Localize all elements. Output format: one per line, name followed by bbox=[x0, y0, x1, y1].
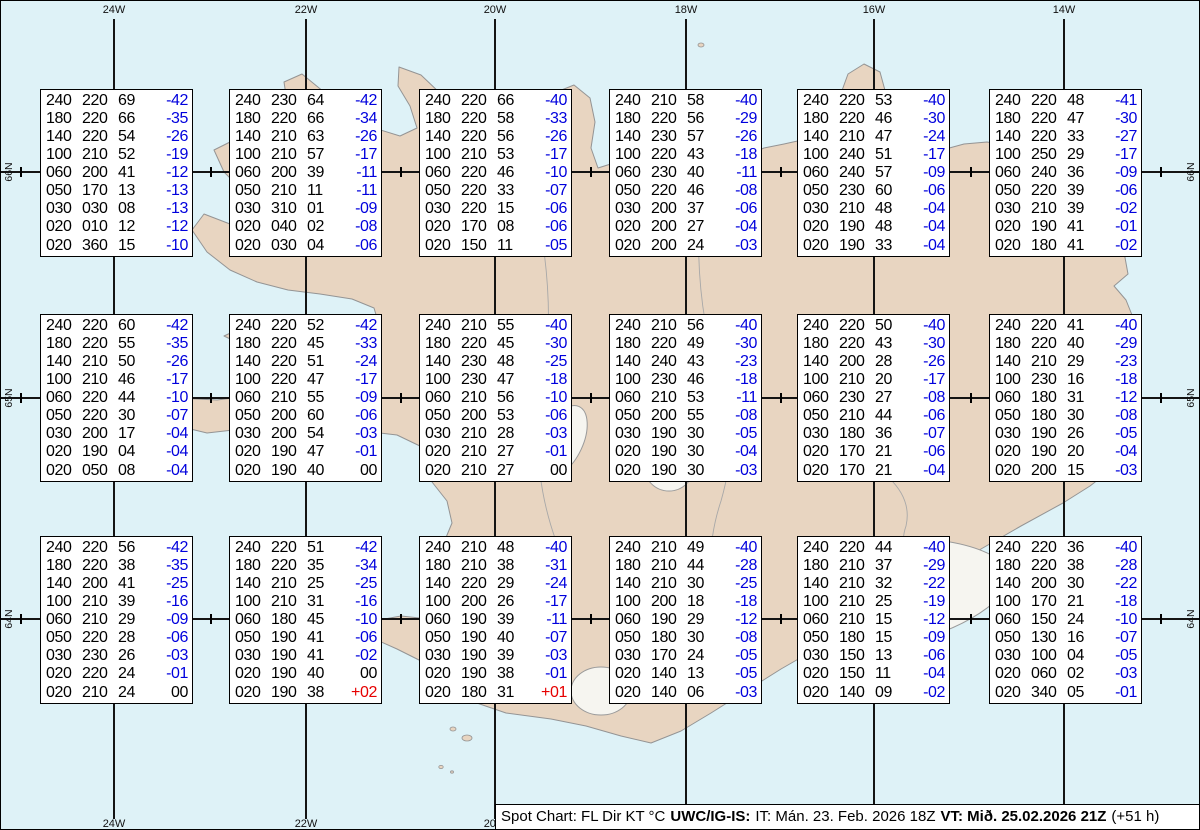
temperature-c: -11 bbox=[356, 164, 377, 181]
spot-row: 06020039-11 bbox=[235, 164, 377, 181]
temperature-c: -04 bbox=[166, 443, 188, 460]
temperature-c: -30 bbox=[923, 110, 945, 127]
temperature-c: -40 bbox=[923, 539, 945, 556]
flight-level: 060 bbox=[425, 611, 461, 628]
wind-speed-kt: 56 bbox=[687, 317, 715, 334]
spot-row: 18022045-33 bbox=[235, 335, 377, 352]
spot-row: 10025029-17 bbox=[995, 146, 1137, 163]
flight-level: 240 bbox=[615, 92, 651, 109]
wind-speed-kt: 37 bbox=[687, 200, 715, 217]
flight-level: 060 bbox=[803, 164, 839, 181]
wind-direction: 210 bbox=[1031, 353, 1067, 370]
wind-speed-kt: 44 bbox=[687, 557, 715, 574]
wind-speed-kt: 48 bbox=[1067, 92, 1095, 109]
flight-level: 100 bbox=[235, 371, 271, 388]
temperature-c: -06 bbox=[923, 443, 945, 460]
spot-row: 14020028-26 bbox=[803, 353, 945, 370]
spot-row: 06024036-09 bbox=[995, 164, 1137, 181]
spot-row: 14023057-26 bbox=[615, 128, 757, 145]
temperature-c: -02 bbox=[923, 684, 945, 701]
wind-speed-kt: 63 bbox=[307, 128, 335, 145]
spot-row: 10023016-18 bbox=[995, 371, 1137, 388]
wind-direction: 220 bbox=[82, 629, 118, 646]
temperature-c: -11 bbox=[736, 389, 757, 406]
temperature-c: -10 bbox=[1115, 611, 1137, 628]
wind-direction: 230 bbox=[271, 92, 307, 109]
wind-speed-kt: 43 bbox=[687, 353, 715, 370]
flight-level: 100 bbox=[615, 371, 651, 388]
wind-direction: 010 bbox=[82, 218, 118, 235]
flight-level: 100 bbox=[615, 593, 651, 610]
flight-level: 240 bbox=[235, 92, 271, 109]
spot-row: 10021039-16 bbox=[46, 593, 188, 610]
wind-direction: 190 bbox=[271, 443, 307, 460]
spot-row: 03010004-05 bbox=[995, 647, 1137, 664]
graticule-tick bbox=[590, 614, 592, 624]
flight-level: 060 bbox=[235, 611, 271, 628]
spot-row: 14021050-26 bbox=[46, 353, 188, 370]
wind-direction: 200 bbox=[651, 200, 687, 217]
spot-row: 0201904000 bbox=[235, 462, 377, 479]
temperature-c: -03 bbox=[545, 425, 567, 442]
graticule-tick bbox=[20, 614, 22, 624]
wind-speed-kt: 01 bbox=[307, 200, 335, 217]
temperature-c: -12 bbox=[166, 218, 188, 235]
spot-row: 02019033-04 bbox=[803, 237, 945, 254]
temperature-c: -08 bbox=[735, 182, 757, 199]
flight-level: 020 bbox=[46, 684, 82, 701]
wind-direction: 340 bbox=[1031, 684, 1067, 701]
flight-level: 050 bbox=[235, 407, 271, 424]
temperature-c: -06 bbox=[545, 407, 567, 424]
wind-speed-kt: 02 bbox=[307, 218, 335, 235]
flight-level: 180 bbox=[425, 557, 461, 574]
graticule-tick bbox=[400, 393, 402, 403]
longitude-label: 14W bbox=[1047, 4, 1081, 16]
temperature-c: -04 bbox=[923, 200, 945, 217]
flight-level: 100 bbox=[425, 371, 461, 388]
temperature-c: -09 bbox=[1115, 164, 1137, 181]
flight-level: 140 bbox=[803, 353, 839, 370]
temperature-c: -40 bbox=[545, 317, 567, 334]
flight-level: 140 bbox=[803, 128, 839, 145]
spot-row: 06019029-12 bbox=[615, 611, 757, 628]
wind-direction: 220 bbox=[271, 110, 307, 127]
spot-row: 06021055-09 bbox=[235, 389, 377, 406]
temperature-c: -16 bbox=[355, 593, 377, 610]
wind-direction: 180 bbox=[839, 629, 875, 646]
wind-speed-kt: 40 bbox=[497, 629, 525, 646]
wind-direction: 190 bbox=[271, 665, 307, 682]
wind-direction: 210 bbox=[839, 407, 875, 424]
temperature-c: -06 bbox=[1115, 182, 1137, 199]
spot-row: 06024057-09 bbox=[803, 164, 945, 181]
wind-speed-kt: 26 bbox=[1067, 425, 1095, 442]
wind-speed-kt: 64 bbox=[307, 92, 335, 109]
wind-direction: 210 bbox=[271, 593, 307, 610]
wind-speed-kt: 11 bbox=[307, 182, 335, 199]
valid-time: VT: Mið. 25.02.2026 21Z bbox=[941, 808, 1107, 825]
wind-speed-kt: 25 bbox=[875, 593, 903, 610]
flight-level: 030 bbox=[995, 425, 1031, 442]
flight-level: 050 bbox=[235, 629, 271, 646]
wind-speed-kt: 47 bbox=[875, 128, 903, 145]
wind-speed-kt: 38 bbox=[118, 557, 146, 574]
wind-speed-kt: 18 bbox=[687, 593, 715, 610]
wind-direction: 220 bbox=[461, 200, 497, 217]
wind-direction: 220 bbox=[1031, 182, 1067, 199]
wind-direction: 230 bbox=[839, 182, 875, 199]
latitude-label: 66N bbox=[3, 162, 15, 181]
wind-speed-kt: 47 bbox=[497, 371, 525, 388]
wind-direction: 220 bbox=[651, 110, 687, 127]
temperature-c: 00 bbox=[550, 462, 567, 479]
spot-data-box: 24023064-4218022066-3414021063-261002105… bbox=[229, 89, 382, 257]
temperature-c: -42 bbox=[355, 539, 377, 556]
flight-level: 020 bbox=[46, 218, 82, 235]
spot-row: 03021048-04 bbox=[803, 200, 945, 217]
graticule-tick bbox=[590, 167, 592, 177]
wind-direction: 220 bbox=[461, 92, 497, 109]
spot-row: 24022050-40 bbox=[803, 317, 945, 334]
flight-level: 180 bbox=[995, 110, 1031, 127]
wind-direction: 220 bbox=[1031, 335, 1067, 352]
spot-row: 24022051-42 bbox=[235, 539, 377, 556]
flight-level: 140 bbox=[995, 575, 1031, 592]
wind-direction: 210 bbox=[839, 611, 875, 628]
temperature-c: -33 bbox=[355, 335, 377, 352]
wind-direction: 200 bbox=[651, 407, 687, 424]
wind-direction: 240 bbox=[651, 353, 687, 370]
temperature-c: -06 bbox=[923, 647, 945, 664]
spot-row: 10021053-17 bbox=[425, 146, 567, 163]
wind-speed-kt: 53 bbox=[497, 146, 525, 163]
wind-direction: 200 bbox=[82, 575, 118, 592]
temperature-c: -11 bbox=[736, 164, 757, 181]
flight-level: 140 bbox=[235, 575, 271, 592]
wind-speed-kt: 29 bbox=[687, 611, 715, 628]
wind-direction: 220 bbox=[839, 335, 875, 352]
spot-row: 18022038-35 bbox=[46, 557, 188, 574]
temperature-c: -07 bbox=[1115, 629, 1137, 646]
spot-row: 18022066-35 bbox=[46, 110, 188, 127]
wind-speed-kt: 38 bbox=[497, 557, 525, 574]
temperature-c: -16 bbox=[166, 593, 188, 610]
wind-direction: 200 bbox=[82, 164, 118, 181]
wind-direction: 190 bbox=[461, 611, 497, 628]
graticule-tick bbox=[590, 393, 592, 403]
temperature-c: -25 bbox=[735, 575, 757, 592]
wind-speed-kt: 44 bbox=[118, 389, 146, 406]
wind-direction: 220 bbox=[82, 317, 118, 334]
wind-speed-kt: 28 bbox=[118, 629, 146, 646]
spot-row: 02036015-10 bbox=[46, 237, 188, 254]
temperature-c: -23 bbox=[735, 353, 757, 370]
wind-direction: 170 bbox=[839, 462, 875, 479]
spot-row: 03020017-04 bbox=[46, 425, 188, 442]
issue-time: IT: Mán. 23. Feb. 2026 18Z bbox=[755, 808, 935, 825]
flight-level: 140 bbox=[615, 353, 651, 370]
wind-speed-kt: 09 bbox=[875, 684, 903, 701]
wind-direction: 200 bbox=[82, 425, 118, 442]
temperature-c: -10 bbox=[545, 389, 567, 406]
flight-level: 100 bbox=[46, 593, 82, 610]
temperature-c: -01 bbox=[545, 665, 567, 682]
flight-level: 020 bbox=[803, 665, 839, 682]
temperature-c: -42 bbox=[166, 539, 188, 556]
flight-level: 180 bbox=[615, 110, 651, 127]
flight-level: 240 bbox=[235, 317, 271, 334]
flight-level: 030 bbox=[803, 647, 839, 664]
wind-direction: 230 bbox=[461, 371, 497, 388]
spot-row: 24022048-41 bbox=[995, 92, 1137, 109]
spot-row: 0201904000 bbox=[235, 665, 377, 682]
wind-direction: 220 bbox=[461, 128, 497, 145]
wind-direction: 170 bbox=[839, 443, 875, 460]
spot-row: 06015024-10 bbox=[995, 611, 1137, 628]
wind-direction: 210 bbox=[839, 200, 875, 217]
flight-level: 030 bbox=[425, 647, 461, 664]
spot-row: 02021027-01 bbox=[425, 443, 567, 460]
flight-level: 020 bbox=[425, 462, 461, 479]
wind-speed-kt: 46 bbox=[497, 164, 525, 181]
spot-row: 14021029-23 bbox=[995, 353, 1137, 370]
temperature-c: -18 bbox=[545, 371, 567, 388]
temperature-c: -40 bbox=[923, 317, 945, 334]
wind-direction: 220 bbox=[651, 146, 687, 163]
flight-level: 020 bbox=[615, 443, 651, 460]
wind-speed-kt: 41 bbox=[1067, 218, 1095, 235]
spot-row: 02019048-04 bbox=[803, 218, 945, 235]
temperature-c: +02 bbox=[351, 684, 377, 701]
flight-level: 030 bbox=[46, 200, 82, 217]
temperature-c: -04 bbox=[735, 218, 757, 235]
wind-speed-kt: 04 bbox=[307, 237, 335, 254]
wind-direction: 220 bbox=[1031, 92, 1067, 109]
wind-direction: 180 bbox=[839, 425, 875, 442]
spot-row: 05022046-08 bbox=[615, 182, 757, 199]
temperature-c: -09 bbox=[166, 611, 188, 628]
spot-row: 03021028-03 bbox=[425, 425, 567, 442]
wind-speed-kt: 27 bbox=[687, 218, 715, 235]
temperature-c: -18 bbox=[735, 593, 757, 610]
wind-direction: 190 bbox=[1031, 443, 1067, 460]
spot-row: 10021057-17 bbox=[235, 146, 377, 163]
wind-direction: 200 bbox=[271, 164, 307, 181]
wind-direction: 180 bbox=[271, 611, 307, 628]
flight-level: 240 bbox=[46, 317, 82, 334]
wind-direction: 170 bbox=[651, 647, 687, 664]
wind-direction: 200 bbox=[839, 353, 875, 370]
temperature-c: -26 bbox=[735, 128, 757, 145]
flight-level: 180 bbox=[235, 335, 271, 352]
flight-level: 100 bbox=[235, 593, 271, 610]
wind-direction: 180 bbox=[1031, 407, 1067, 424]
temperature-c: -24 bbox=[545, 575, 567, 592]
flight-level: 180 bbox=[803, 557, 839, 574]
spot-row: 02019004-04 bbox=[46, 443, 188, 460]
wind-speed-kt: 27 bbox=[497, 462, 525, 479]
graticule-tick bbox=[1160, 167, 1162, 177]
wind-speed-kt: 56 bbox=[497, 389, 525, 406]
wind-direction: 240 bbox=[1031, 164, 1067, 181]
spot-row: 18022040-29 bbox=[995, 335, 1137, 352]
wind-direction: 190 bbox=[271, 629, 307, 646]
flight-level: 140 bbox=[46, 575, 82, 592]
wind-direction: 220 bbox=[461, 182, 497, 199]
flight-level: 240 bbox=[425, 539, 461, 556]
wind-speed-kt: 40 bbox=[1067, 335, 1095, 352]
spot-row: 24022052-42 bbox=[235, 317, 377, 334]
wind-speed-kt: 38 bbox=[307, 684, 335, 701]
temperature-c: -23 bbox=[1115, 353, 1137, 370]
flight-level: 060 bbox=[235, 164, 271, 181]
wind-speed-kt: 38 bbox=[497, 665, 525, 682]
spot-row: 05022039-06 bbox=[995, 182, 1137, 199]
temperature-c: -42 bbox=[355, 317, 377, 334]
wind-speed-kt: 53 bbox=[497, 407, 525, 424]
spot-row: 06018031-12 bbox=[995, 389, 1137, 406]
graticule-tick bbox=[210, 614, 212, 624]
flight-level: 020 bbox=[46, 462, 82, 479]
wind-speed-kt: 55 bbox=[687, 407, 715, 424]
flight-level: 140 bbox=[995, 353, 1031, 370]
spot-row: 05020055-08 bbox=[615, 407, 757, 424]
spot-row: 06021056-10 bbox=[425, 389, 567, 406]
wind-speed-kt: 57 bbox=[687, 128, 715, 145]
wind-direction: 220 bbox=[271, 539, 307, 556]
wind-speed-kt: 15 bbox=[497, 200, 525, 217]
temperature-c: -17 bbox=[355, 146, 377, 163]
spot-row: 03021039-02 bbox=[995, 200, 1137, 217]
temperature-c: -08 bbox=[735, 629, 757, 646]
wind-speed-kt: 33 bbox=[1067, 128, 1095, 145]
wind-speed-kt: 30 bbox=[1067, 407, 1095, 424]
temperature-c: -26 bbox=[355, 128, 377, 145]
temperature-c: -02 bbox=[355, 647, 377, 664]
spot-row: 03020054-03 bbox=[235, 425, 377, 442]
flight-level: 240 bbox=[995, 92, 1031, 109]
flight-level: 240 bbox=[46, 539, 82, 556]
wind-direction: 190 bbox=[651, 425, 687, 442]
temperature-c: -02 bbox=[1115, 200, 1137, 217]
wind-speed-kt: 55 bbox=[118, 335, 146, 352]
flight-level: 060 bbox=[425, 389, 461, 406]
wind-speed-kt: 44 bbox=[875, 407, 903, 424]
temperature-c: -05 bbox=[1115, 425, 1137, 442]
flight-level: 060 bbox=[46, 389, 82, 406]
flight-level: 240 bbox=[425, 317, 461, 334]
wind-speed-kt: 46 bbox=[875, 110, 903, 127]
temperature-c: -33 bbox=[545, 110, 567, 127]
spot-row: 02019030-03 bbox=[615, 462, 757, 479]
wind-direction: 210 bbox=[461, 443, 497, 460]
spot-row: 24021049-40 bbox=[615, 539, 757, 556]
flight-level: 060 bbox=[803, 389, 839, 406]
temperature-c: -06 bbox=[545, 200, 567, 217]
wind-direction: 210 bbox=[461, 389, 497, 406]
flight-level: 180 bbox=[235, 110, 271, 127]
wind-direction: 210 bbox=[651, 92, 687, 109]
spot-row: 02022024-01 bbox=[46, 665, 188, 682]
spot-row: 02014013-05 bbox=[615, 665, 757, 682]
flight-level: 100 bbox=[803, 146, 839, 163]
wind-speed-kt: 57 bbox=[875, 164, 903, 181]
flight-level: 060 bbox=[615, 611, 651, 628]
wind-direction: 180 bbox=[1031, 389, 1067, 406]
temperature-c: -07 bbox=[545, 182, 567, 199]
spot-row: 10021046-17 bbox=[46, 371, 188, 388]
flight-level: 060 bbox=[995, 389, 1031, 406]
graticule-tick bbox=[780, 167, 782, 177]
flight-level: 140 bbox=[615, 128, 651, 145]
wind-speed-kt: 45 bbox=[307, 335, 335, 352]
wind-speed-kt: 54 bbox=[118, 128, 146, 145]
flight-level: 030 bbox=[46, 647, 82, 664]
spot-row: 10021052-19 bbox=[46, 146, 188, 163]
wind-speed-kt: 38 bbox=[1067, 557, 1095, 574]
spot-row: 06022046-10 bbox=[425, 164, 567, 181]
wind-speed-kt: 21 bbox=[1067, 593, 1095, 610]
temperature-c: -40 bbox=[545, 539, 567, 556]
temperature-c: -13 bbox=[166, 200, 188, 217]
wind-speed-kt: 41 bbox=[307, 647, 335, 664]
flight-level: 030 bbox=[615, 647, 651, 664]
flight-level: 180 bbox=[235, 557, 271, 574]
wind-direction: 220 bbox=[1031, 539, 1067, 556]
spot-row: 05018030-08 bbox=[615, 629, 757, 646]
temperature-c: -18 bbox=[735, 146, 757, 163]
flight-level: 240 bbox=[425, 92, 461, 109]
wind-speed-kt: 47 bbox=[307, 371, 335, 388]
wind-direction: 220 bbox=[1031, 128, 1067, 145]
flight-level: 060 bbox=[235, 389, 271, 406]
spot-row: 24022069-42 bbox=[46, 92, 188, 109]
latitude-label: 66N bbox=[1185, 162, 1197, 181]
flight-level: 180 bbox=[615, 557, 651, 574]
wind-direction: 220 bbox=[82, 389, 118, 406]
wind-direction: 170 bbox=[461, 218, 497, 235]
graticule-tick bbox=[210, 167, 212, 177]
wind-speed-kt: 56 bbox=[687, 110, 715, 127]
flight-level: 020 bbox=[995, 443, 1031, 460]
flight-level: 050 bbox=[235, 182, 271, 199]
wind-direction: 200 bbox=[461, 593, 497, 610]
temperature-c: -03 bbox=[735, 462, 757, 479]
temperature-c: -40 bbox=[923, 92, 945, 109]
spot-chart: 24W24W22W22W20W20W18W18W16W16W14W14W66N6… bbox=[0, 0, 1200, 830]
flight-level: 240 bbox=[803, 317, 839, 334]
graticule-tick bbox=[1160, 614, 1162, 624]
flight-level: 240 bbox=[46, 92, 82, 109]
flight-level: 050 bbox=[615, 629, 651, 646]
flight-level: 030 bbox=[615, 200, 651, 217]
wind-direction: 220 bbox=[839, 110, 875, 127]
temperature-c: -29 bbox=[735, 110, 757, 127]
wind-direction: 240 bbox=[839, 146, 875, 163]
wind-direction: 140 bbox=[651, 684, 687, 701]
spot-row: 18022046-30 bbox=[803, 110, 945, 127]
temperature-c: -03 bbox=[545, 647, 567, 664]
longitude-label: 22W bbox=[289, 818, 323, 830]
graticule-tick bbox=[20, 167, 22, 177]
wind-speed-kt: 52 bbox=[307, 317, 335, 334]
wind-direction: 210 bbox=[82, 684, 118, 701]
spot-row: 18022055-35 bbox=[46, 335, 188, 352]
wind-speed-kt: 06 bbox=[687, 684, 715, 701]
wind-direction: 210 bbox=[461, 146, 497, 163]
wind-direction: 210 bbox=[82, 371, 118, 388]
